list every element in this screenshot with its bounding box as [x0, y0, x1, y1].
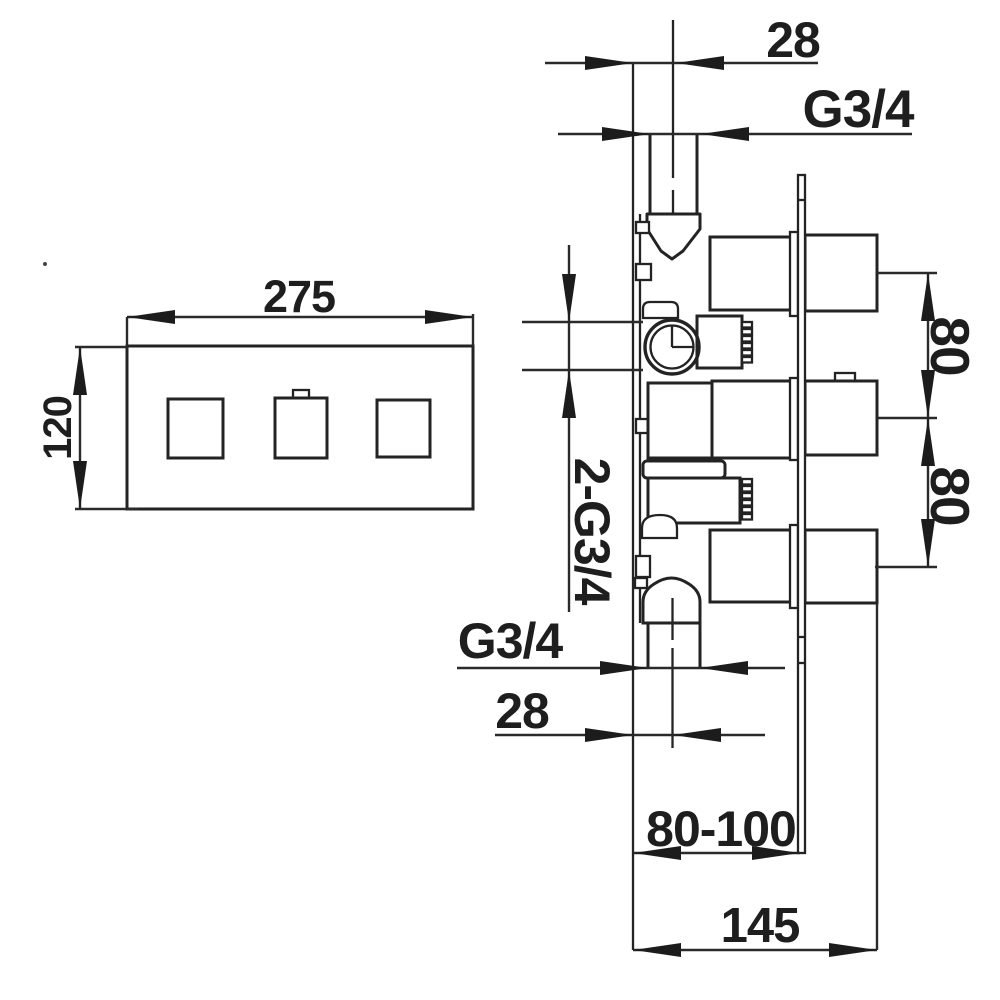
technical-drawing: 275 120	[0, 0, 1000, 1000]
arrowhead	[73, 461, 87, 509]
bottom-knob	[805, 530, 877, 603]
face-plate-edge	[798, 175, 805, 853]
dim-label-upper-spacing: 80	[919, 316, 981, 375]
top-cartridge-flange	[790, 232, 798, 316]
mounting-clip	[636, 556, 650, 577]
drawing-canvas: 275 120	[0, 0, 1000, 1000]
dim-label-lower-spacing: 80	[919, 466, 981, 525]
middle-knob	[805, 381, 877, 455]
port-cap	[643, 302, 678, 318]
dim-label-side-ports: 2-G3/4	[564, 458, 620, 606]
dim-label-bottom-thread: G3/4	[458, 613, 564, 669]
dim-label-top-pipe: 28	[766, 12, 820, 68]
right-handle-square	[377, 400, 430, 457]
front-view	[43, 262, 473, 509]
thread-ribs-lower	[742, 479, 752, 520]
dim-label-depth-range: 80-100	[646, 801, 796, 857]
arrowhead	[127, 310, 175, 324]
lower-flange-bar	[643, 461, 725, 478]
mounting-clip	[636, 264, 651, 280]
dim-label-overall-depth: 145	[721, 899, 800, 953]
dim-label-front-height: 120	[36, 396, 80, 460]
arrowhead	[73, 347, 87, 395]
side-port-body	[697, 316, 742, 368]
middle-cartridge-flange	[790, 378, 798, 460]
top-inlet-funnel	[647, 214, 700, 259]
scan-speck	[43, 262, 47, 266]
arrowhead	[425, 310, 473, 324]
bottom-cartridge-body	[710, 530, 792, 602]
left-handle-square	[168, 399, 223, 458]
dim-label-top-thread: G3/4	[803, 80, 915, 139]
top-cartridge-body	[710, 237, 792, 310]
top-knob	[805, 235, 877, 311]
bottom-cartridge-flange	[790, 525, 798, 608]
thread-ribs-upper	[742, 322, 752, 363]
middle-cartridge-body	[712, 381, 792, 458]
middle-handle-square	[275, 398, 327, 458]
dim-label-front-width: 275	[263, 271, 335, 322]
mounting-clip	[635, 578, 647, 588]
dim-label-bottom-pipe: 28	[495, 683, 549, 739]
mounting-clip	[636, 222, 649, 233]
dome-cap	[642, 515, 677, 538]
